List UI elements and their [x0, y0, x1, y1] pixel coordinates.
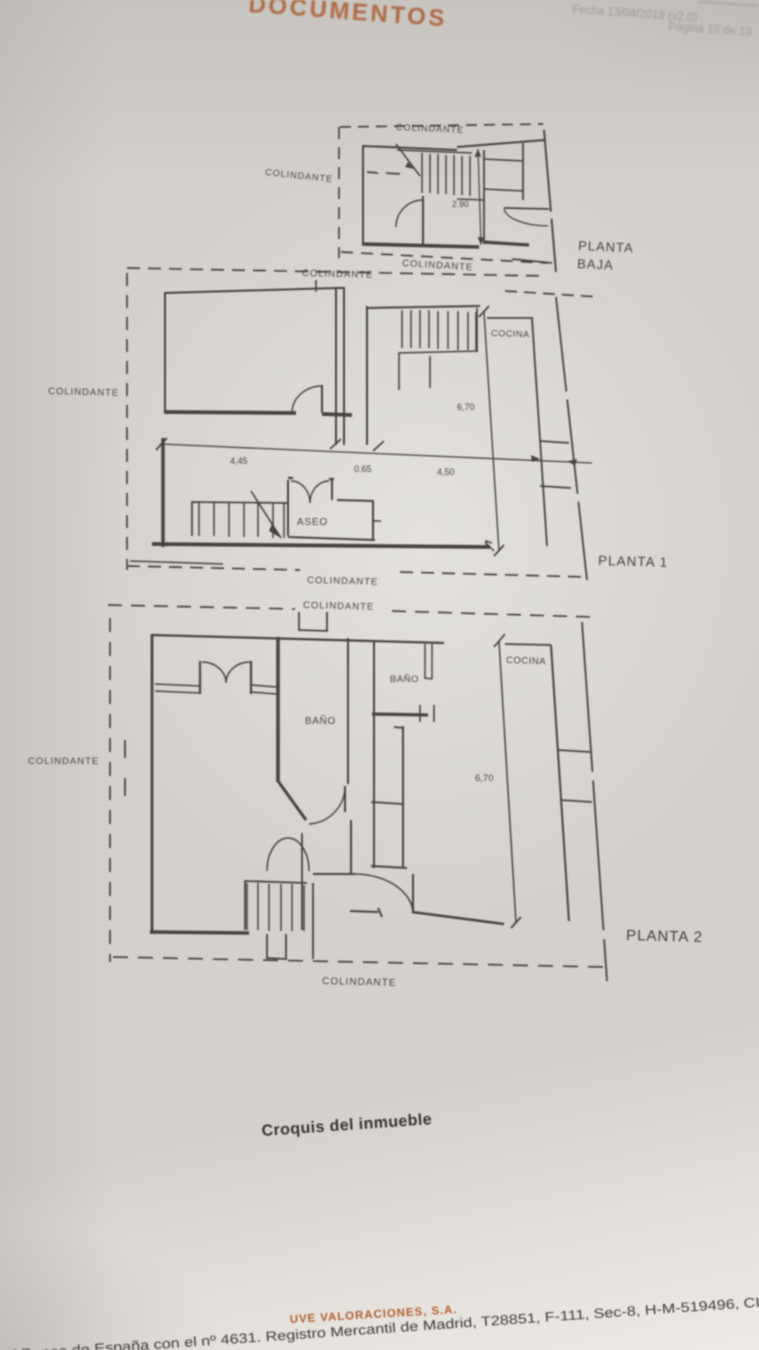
- svg-text:4,45: 4,45: [230, 456, 248, 466]
- svg-text:6,70: 6,70: [457, 402, 475, 412]
- svg-text:COCINA: COCINA: [491, 328, 530, 339]
- svg-text:inscrita del Banco de España c: inscrita del Banco de España con el nº 4…: [0, 1294, 759, 1350]
- svg-text:DOCUMENTOS: DOCUMENTOS: [248, 0, 448, 33]
- svg-text:COLINDANTE: COLINDANTE: [402, 258, 474, 273]
- svg-text:BAÑO: BAÑO: [390, 674, 419, 685]
- svg-text:Croquis del inmueble: Croquis del inmueble: [261, 1111, 432, 1140]
- svg-text:BAÑO: BAÑO: [305, 714, 336, 727]
- svg-text:COLINDANTE: COLINDANTE: [48, 386, 119, 399]
- svg-text:PLANTA 1: PLANTA 1: [598, 553, 668, 570]
- svg-text:COLINDANTE: COLINDANTE: [303, 600, 374, 613]
- svg-text:4,50: 4,50: [437, 467, 455, 477]
- svg-text:COLINDANTE: COLINDANTE: [302, 268, 373, 281]
- svg-text:2.90: 2.90: [452, 199, 469, 209]
- svg-text:PLANTA: PLANTA: [578, 238, 634, 255]
- svg-text:COLINDANTE: COLINDANTE: [265, 167, 334, 184]
- svg-text:COLINDANTE: COLINDANTE: [28, 756, 99, 767]
- svg-text:PLANTA 2: PLANTA 2: [626, 927, 703, 946]
- svg-text:Página 10 de 19: Página 10 de 19: [668, 21, 752, 39]
- svg-text:6,70: 6,70: [475, 773, 494, 784]
- svg-text:BAJA: BAJA: [577, 256, 614, 273]
- svg-text:ASEO: ASEO: [297, 517, 328, 528]
- svg-text:COCINA: COCINA: [506, 655, 546, 667]
- svg-text:0.65: 0.65: [354, 464, 372, 474]
- svg-text:COLINDANTE: COLINDANTE: [322, 976, 397, 989]
- svg-text:COLINDANTE: COLINDANTE: [396, 122, 464, 135]
- svg-text:COLINDANTE: COLINDANTE: [307, 575, 378, 588]
